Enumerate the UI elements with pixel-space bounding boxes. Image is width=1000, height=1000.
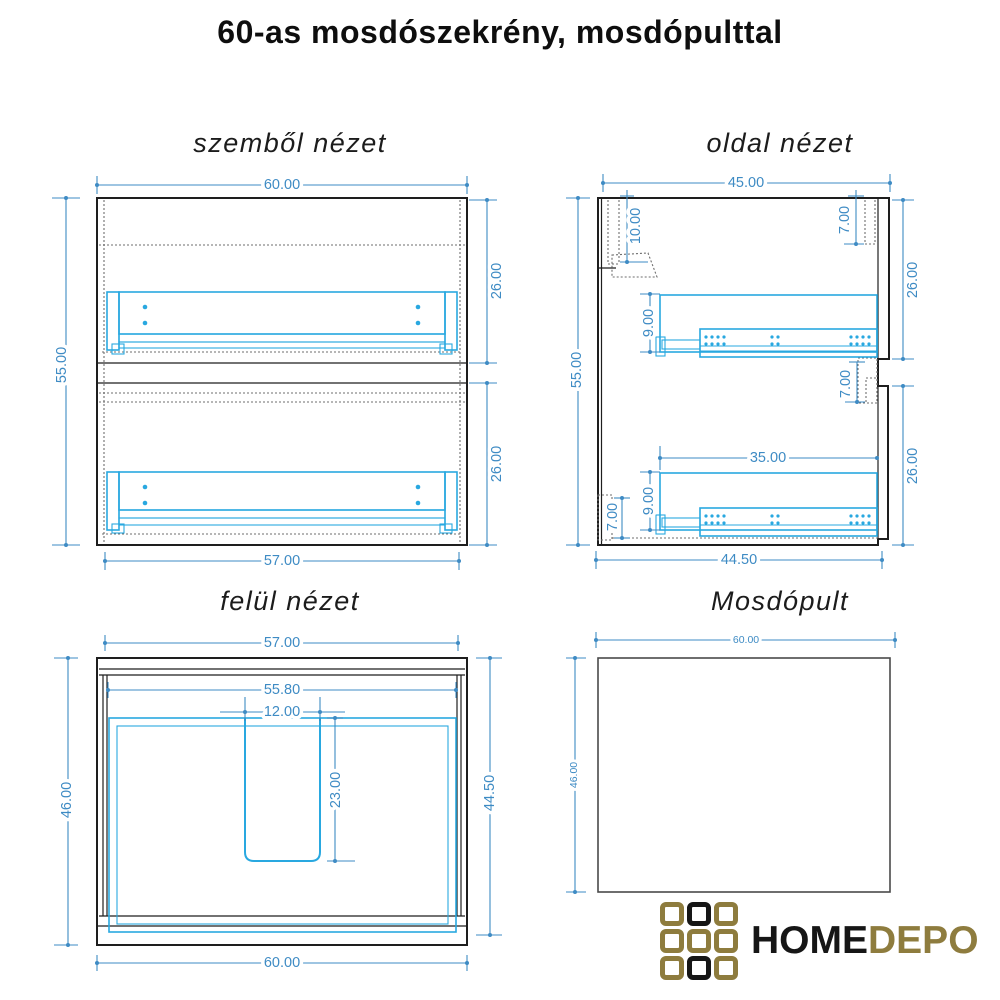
front-dim-width-bottom-label: 57.00 bbox=[264, 553, 300, 569]
side-view-title: oldal nézet bbox=[560, 128, 1000, 159]
top-dim-width-inner-label: 55.80 bbox=[264, 682, 300, 698]
homedepo-logo-text: HOMEDEPO bbox=[751, 919, 979, 963]
top-view-drawing: 57.00 55.80 12.00 23.00 bbox=[40, 585, 540, 1000]
side-lower-rail-dots bbox=[704, 514, 870, 524]
logo-square bbox=[687, 902, 711, 926]
drawing-sheet: 60-as mosdószekrény, mosdópulttal szembő… bbox=[0, 0, 1000, 1000]
logo-square bbox=[660, 929, 684, 953]
side-dim-section-lower: 26.00 bbox=[892, 384, 921, 547]
front-cabinet-outline bbox=[97, 198, 467, 545]
side-dim-bracket: 10.00 bbox=[620, 190, 648, 264]
side-dim-rail-lower-label: 9.00 bbox=[641, 487, 657, 515]
top-dim-width-top-label: 57.00 bbox=[264, 635, 300, 651]
top-dim-cutout-width-label: 12.00 bbox=[264, 704, 300, 720]
side-dim-plinth: 7.00 bbox=[605, 496, 630, 540]
top-dim-width-top: 57.00 bbox=[103, 635, 460, 651]
side-dim-front-top-inset-label: 7.00 bbox=[837, 206, 853, 234]
front-dim-height-left-label: 55.00 bbox=[54, 347, 70, 383]
side-dim-bracket-label: 10.00 bbox=[628, 208, 644, 244]
front-dim-lower-section-label: 26.00 bbox=[489, 446, 505, 482]
front-dim-width-bottom: 57.00 bbox=[103, 552, 461, 570]
front-dim-upper-section-label: 26.00 bbox=[489, 263, 505, 299]
front-view-drawing: 60.00 55.00 26.00 26.00 bbox=[40, 160, 540, 580]
homedepo-logo: HOMEDEPO bbox=[660, 902, 979, 980]
logo-square bbox=[660, 956, 684, 980]
top-dim-width-bottom: 60.00 bbox=[95, 955, 469, 971]
side-dim-rail-lower: 9.00 bbox=[640, 470, 660, 532]
front-dim-width-top: 60.00 bbox=[95, 176, 469, 194]
front-dim-width-top-label: 60.00 bbox=[264, 177, 300, 193]
homedepo-logo-icon bbox=[660, 902, 738, 980]
side-dim-section-upper-label: 26.00 bbox=[905, 262, 921, 298]
front-dim-lower-section: 26.00 bbox=[469, 381, 505, 547]
countertop-dim-depth: 46.00 bbox=[566, 656, 586, 894]
top-cabinet-outline bbox=[97, 658, 467, 945]
side-dim-depth-bottom-label: 44.50 bbox=[721, 552, 757, 568]
side-dim-height-left-label: 55.00 bbox=[569, 352, 585, 388]
side-dim-front-gap: 7.00 bbox=[838, 362, 865, 404]
front-dim-height-left: 55.00 bbox=[52, 196, 80, 547]
front-view-title: szemből nézet bbox=[40, 128, 540, 159]
side-dim-plinth-label: 7.00 bbox=[605, 503, 621, 531]
side-dim-height-left: 55.00 bbox=[566, 196, 590, 547]
logo-square bbox=[687, 929, 711, 953]
top-dim-depth-right-label: 44.50 bbox=[482, 775, 498, 811]
top-drawer-walls bbox=[109, 718, 456, 932]
logo-square bbox=[714, 929, 738, 953]
side-dim-depth-top: 45.00 bbox=[601, 174, 892, 192]
front-dim-upper-section: 26.00 bbox=[469, 198, 505, 365]
countertop-dim-width: 60.00 bbox=[594, 632, 897, 648]
side-dim-section-lower-label: 26.00 bbox=[905, 448, 921, 484]
top-dim-depth-left: 46.00 bbox=[54, 656, 78, 947]
side-dim-rail-upper-label: 9.00 bbox=[641, 309, 657, 337]
top-dim-width-inner: 55.80 bbox=[106, 682, 458, 698]
logo-text-home: HOME bbox=[751, 919, 868, 962]
front-upper-drawer bbox=[107, 292, 457, 354]
side-upper-drawer bbox=[656, 295, 877, 357]
top-dim-depth-left-label: 46.00 bbox=[59, 782, 75, 818]
top-dim-width-bottom-label: 60.00 bbox=[264, 955, 300, 971]
countertop-dim-depth-label: 46.00 bbox=[568, 762, 580, 788]
top-dim-cutout-depth-label: 23.00 bbox=[328, 772, 344, 808]
side-dim-rail-upper: 9.00 bbox=[640, 292, 660, 354]
logo-square bbox=[714, 902, 738, 926]
side-lower-drawer bbox=[656, 473, 877, 536]
logo-square bbox=[687, 956, 711, 980]
countertop-drawing: 60.00 46.00 bbox=[560, 585, 1000, 910]
side-dim-depth-top-label: 45.00 bbox=[728, 175, 764, 191]
top-siphon-cutout bbox=[245, 718, 320, 861]
front-lower-drawer bbox=[107, 472, 457, 533]
logo-square bbox=[714, 956, 738, 980]
side-dim-rail-length-label: 35.00 bbox=[750, 450, 786, 466]
page-title: 60-as mosdószekrény, mosdópulttal bbox=[0, 14, 1000, 51]
logo-square bbox=[660, 902, 684, 926]
side-upper-rail-dots bbox=[704, 335, 870, 345]
side-view-drawing: 45.00 55.00 10.00 7.00 bbox=[560, 160, 1000, 580]
side-dim-depth-bottom: 44.50 bbox=[594, 551, 884, 569]
top-dim-cutout-depth: 23.00 bbox=[327, 716, 355, 863]
countertop-dim-width-label: 60.00 bbox=[733, 634, 759, 646]
top-dim-depth-right: 44.50 bbox=[476, 656, 502, 937]
logo-text-depo: DEPO bbox=[868, 919, 979, 962]
countertop-outline bbox=[598, 658, 890, 892]
side-dim-section-upper: 26.00 bbox=[892, 198, 921, 361]
side-dim-front-gap-label: 7.00 bbox=[838, 370, 854, 398]
side-dim-rail-length: 35.00 bbox=[658, 446, 879, 470]
